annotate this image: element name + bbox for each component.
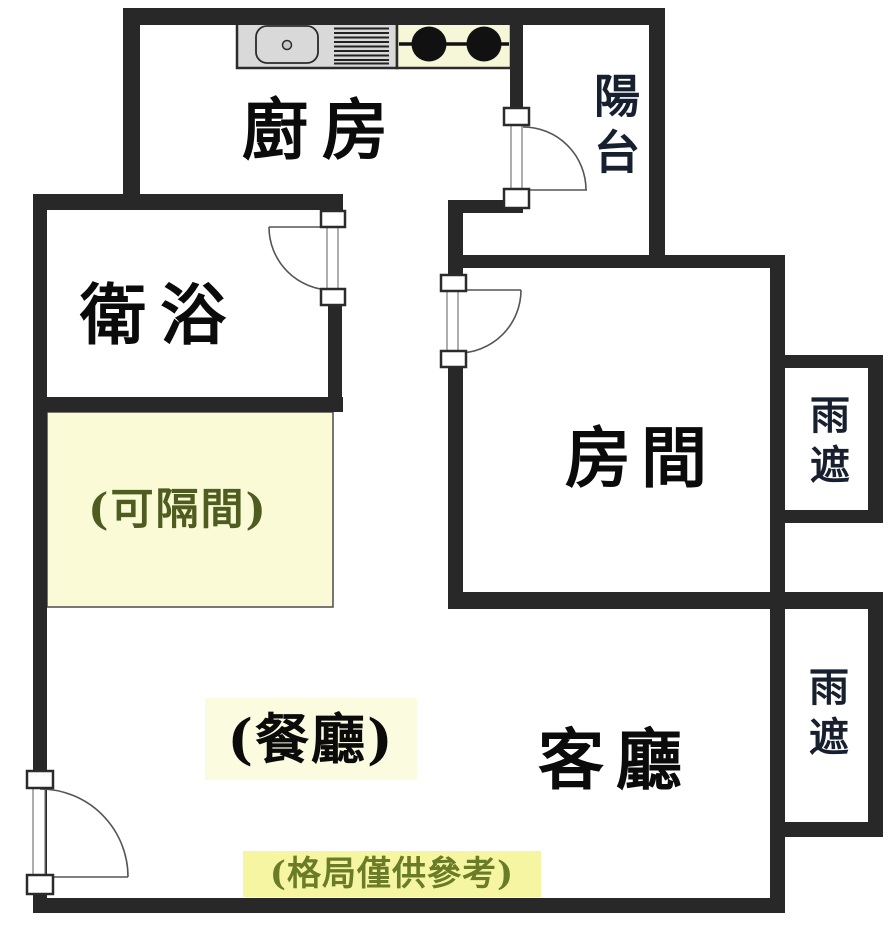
stove-icon [397,20,511,68]
sink-icon [256,26,318,63]
door-post [441,275,466,291]
wall-rainshelter1-right [868,355,883,523]
wall-rainshelter2-bottom [770,822,883,837]
partitionable-note-label: (可隔間) [28,481,328,539]
door-post [27,771,53,788]
living-room-label: 客廳 [466,715,766,805]
wall-bathroom-top [33,194,343,210]
door-post [504,189,529,208]
wall-right-outer [770,255,785,913]
dining-room-label: (餐廳) [205,698,417,780]
door-post [441,351,466,367]
wall-bedroom-top [448,255,785,268]
rain-shelter-upper-label: 雨遮 [791,380,861,508]
wall-balcony-right [649,8,665,268]
door-post [321,211,345,227]
wall-kitchen-left [123,8,140,210]
door-post [321,289,345,305]
wall-bedroom-left-lower [448,366,463,609]
balcony-room-label: 陽台 [579,58,649,198]
rain-shelter-lower-label: 雨遮 [790,652,860,780]
floor-plan: 廚房 陽台 衛浴 (可隔間) 房間 雨遮 (餐廳) 客廳 雨遮 (格局僅供參考) [0,0,889,930]
wall-rainshelter2-right [868,592,883,837]
balcony-door [504,108,587,208]
wall-bedroom-bottom [448,592,883,609]
wall-bathroom-right [328,304,342,412]
wall-top [123,8,665,25]
wall-bathroom-bottom [33,397,343,412]
bedroom-room-label: 房間 [491,413,791,503]
wall-rainshelter1-top [770,355,883,368]
door-post [504,108,529,125]
wall-rainshelter1-bottom [770,510,883,523]
wall-balcony-divider [510,8,523,112]
bedroom-door [441,275,521,367]
kitchen-counter [237,20,397,68]
kitchen-room-label: 廚房 [172,85,472,175]
wall-bottom-outer [33,898,783,913]
disclaimer-note-label: (格局僅供參考) [243,851,541,897]
door-post [27,875,53,894]
wall-bedroom-left-upper [448,200,463,277]
entrance-door [27,771,128,894]
bathroom-room-label: 衛浴 [10,270,310,360]
